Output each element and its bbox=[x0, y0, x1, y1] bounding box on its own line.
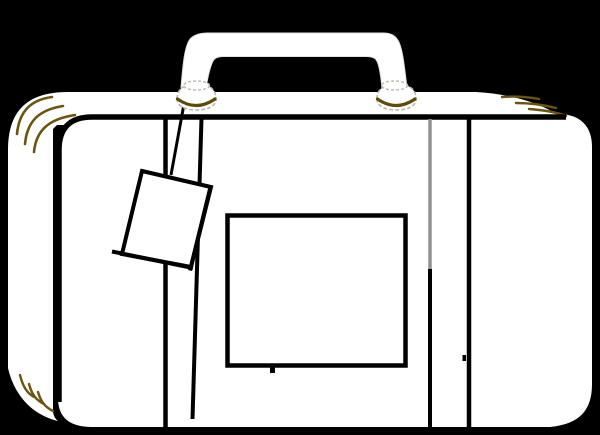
illustration-canvas bbox=[0, 0, 600, 435]
label-window-frame bbox=[228, 216, 406, 366]
label-window bbox=[228, 216, 406, 374]
right-hinge-collar bbox=[382, 81, 408, 90]
label-window-tick bbox=[270, 367, 275, 373]
left-hinge-collar bbox=[184, 81, 210, 90]
right-strap-notch bbox=[463, 355, 467, 361]
